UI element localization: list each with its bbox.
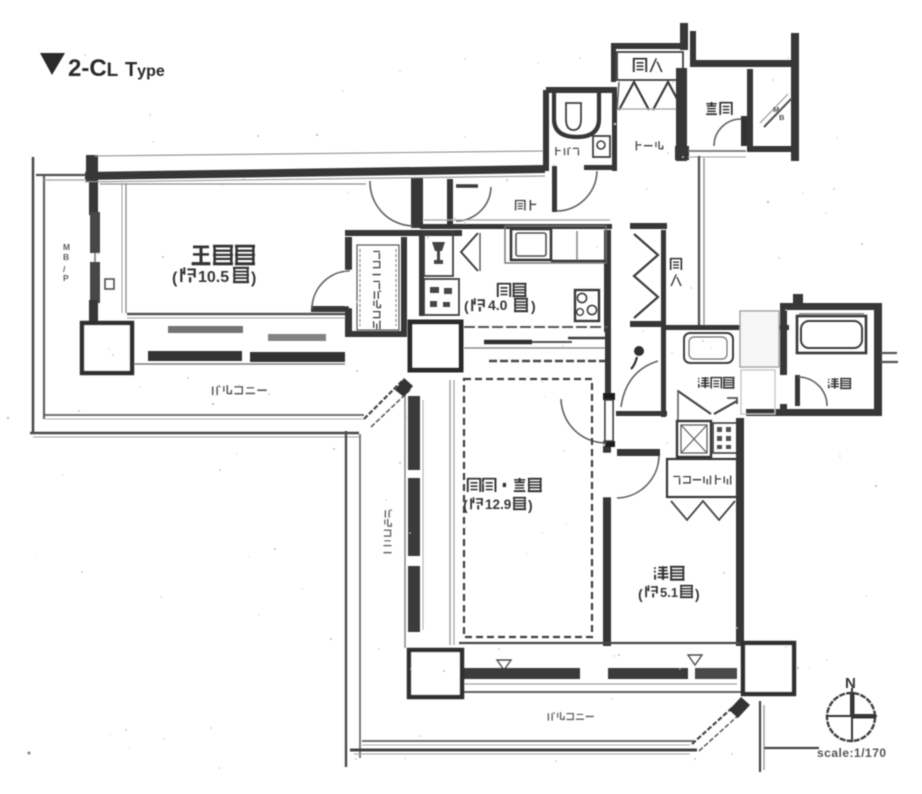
svg-text:): )	[251, 270, 256, 287]
svg-text:10.5: 10.5	[198, 269, 229, 286]
svg-text:N: N	[845, 675, 856, 692]
svg-text:(: (	[463, 497, 468, 513]
svg-text:P: P	[63, 273, 69, 283]
svg-text:): )	[528, 497, 533, 513]
svg-text:(: (	[172, 270, 178, 287]
svg-text:B: B	[779, 113, 785, 122]
svg-text:(: (	[464, 298, 469, 314]
svg-text:): )	[695, 586, 700, 602]
svg-text:M: M	[63, 242, 70, 252]
svg-text:scale:1/170: scale:1/170	[817, 746, 887, 760]
svg-text:5.1: 5.1	[660, 585, 678, 600]
svg-text:12.9: 12.9	[485, 497, 511, 512]
svg-text:4.0: 4.0	[488, 297, 508, 313]
svg-text:(: (	[638, 586, 643, 602]
svg-text:B: B	[63, 252, 69, 262]
svg-text:): )	[531, 298, 536, 314]
